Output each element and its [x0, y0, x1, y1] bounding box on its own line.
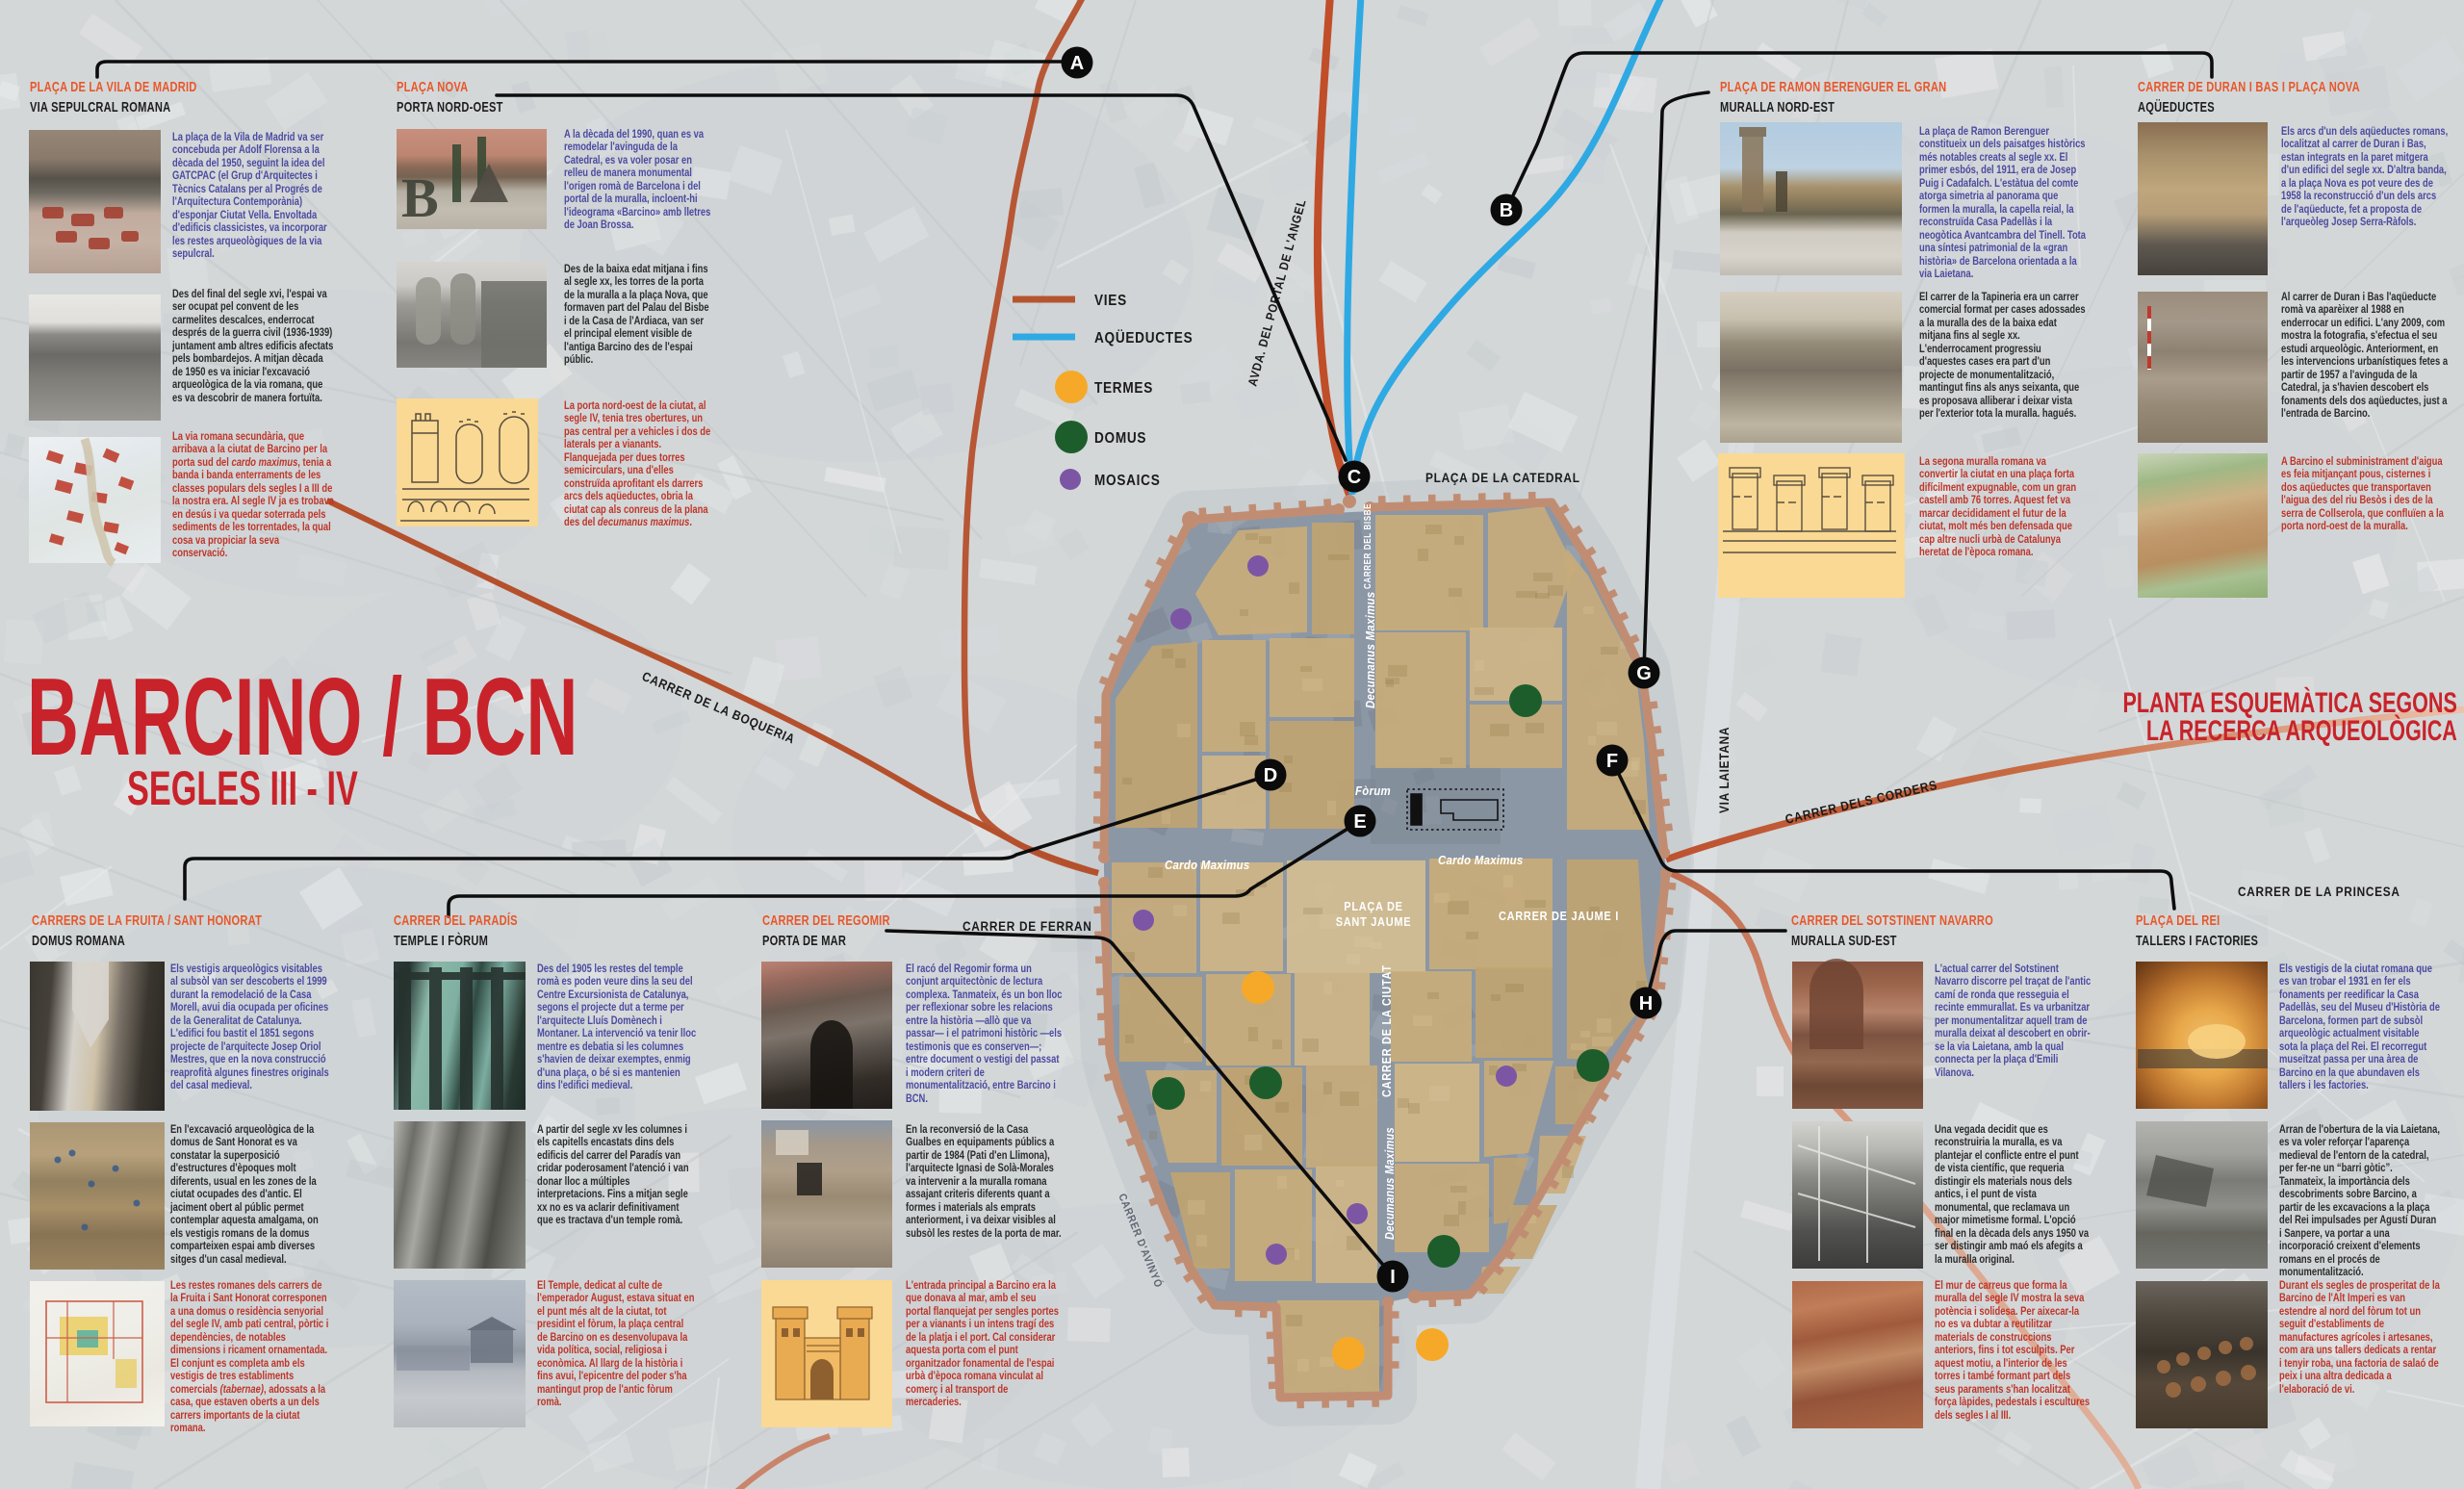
svg-text:PLAÇA DE: PLAÇA DE [1344, 900, 1402, 913]
svg-text:CARRER DE JAUME I: CARRER DE JAUME I [1499, 910, 1619, 923]
svg-text:Cardo Maximus: Cardo Maximus [1165, 858, 1250, 872]
svg-text:F: F [1606, 751, 1618, 772]
svg-text:VIA LAIETANA: VIA LAIETANA [1716, 727, 1732, 813]
svg-text:PLAÇA DE LA CATEDRAL: PLAÇA DE LA CATEDRAL [1425, 470, 1580, 485]
svg-text:Decumanus Maximus: Decumanus Maximus [1363, 592, 1377, 708]
svg-text:B: B [1500, 200, 1513, 221]
svg-text:Fòrum: Fòrum [1355, 783, 1391, 798]
svg-text:G: G [1636, 663, 1652, 684]
svg-text:SANT JAUME: SANT JAUME [1336, 915, 1412, 929]
svg-text:CARRER DE LA PRINCESA: CARRER DE LA PRINCESA [2238, 884, 2400, 899]
svg-text:Cardo Maximus: Cardo Maximus [1438, 853, 1524, 867]
svg-text:CARRER DE FERRAN: CARRER DE FERRAN [962, 918, 1092, 934]
svg-text:CARRER DEL BISBE: CARRER DEL BISBE [1362, 503, 1373, 589]
svg-text:E: E [1353, 811, 1366, 833]
svg-text:A: A [1070, 53, 1084, 74]
svg-text:C: C [1347, 467, 1361, 488]
svg-text:I: I [1390, 1267, 1396, 1288]
svg-text:AQÜEDUCTES: AQÜEDUCTES [1094, 329, 1193, 347]
svg-text:DOMUS: DOMUS [1094, 430, 1146, 447]
svg-text:D: D [1264, 765, 1277, 786]
svg-text:TERMES: TERMES [1094, 380, 1153, 397]
svg-text:VIES: VIES [1094, 293, 1127, 309]
svg-text:CARRER DE LA CIUTAT: CARRER DE LA CIUTAT [1380, 964, 1394, 1097]
svg-text:H: H [1639, 993, 1653, 1014]
svg-text:MOSAICS: MOSAICS [1094, 473, 1160, 489]
svg-text:Decumanus Maximus: Decumanus Maximus [1383, 1127, 1397, 1240]
